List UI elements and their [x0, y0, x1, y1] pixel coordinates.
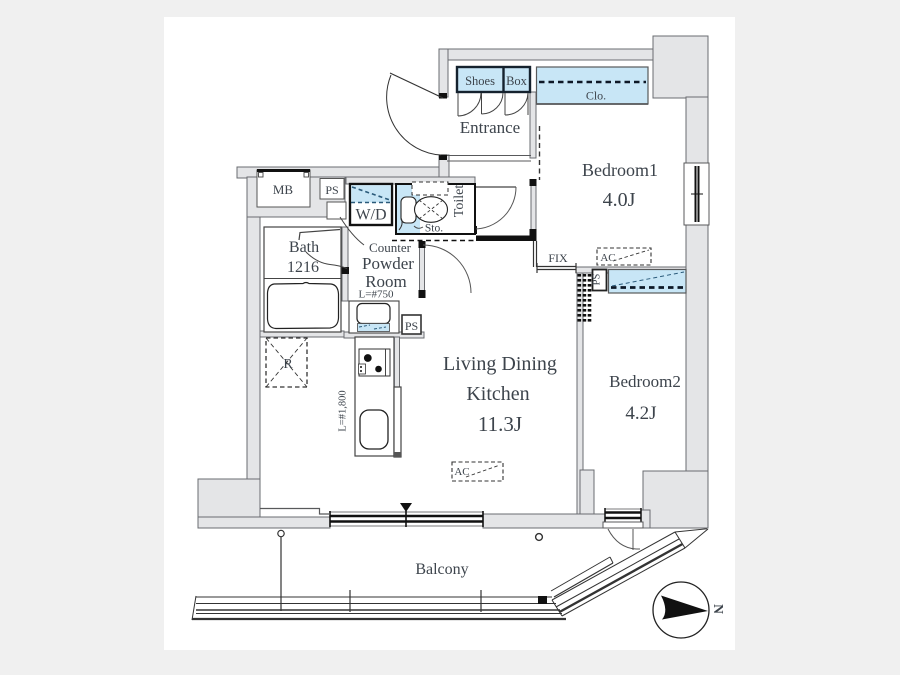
- svg-text:R: R: [283, 357, 293, 372]
- svg-text:Shoes: Shoes: [465, 74, 495, 88]
- svg-text:N: N: [711, 604, 726, 614]
- svg-text:AC: AC: [600, 252, 615, 264]
- svg-text:L=#750: L=#750: [359, 289, 394, 301]
- svg-text:PS: PS: [325, 183, 338, 197]
- svg-text:Toilet: Toilet: [452, 185, 467, 218]
- svg-text:L=#1,800: L=#1,800: [338, 390, 349, 431]
- svg-text:Bath: Bath: [289, 239, 319, 256]
- svg-text:11.3J: 11.3J: [478, 412, 522, 436]
- svg-text:4.0J: 4.0J: [603, 189, 636, 211]
- svg-text:W/D: W/D: [355, 207, 386, 224]
- svg-text:MB: MB: [273, 182, 294, 197]
- svg-text:AC: AC: [454, 466, 469, 478]
- svg-text:Bedroom1: Bedroom1: [582, 160, 658, 180]
- svg-text:Bedroom2: Bedroom2: [609, 372, 681, 391]
- svg-text:4.2J: 4.2J: [625, 403, 656, 424]
- svg-text:Entrance: Entrance: [460, 118, 520, 137]
- svg-text:PS: PS: [592, 274, 603, 286]
- svg-text:PS: PS: [405, 319, 418, 333]
- svg-text:Balcony: Balcony: [415, 561, 468, 578]
- svg-text:Living Dining: Living Dining: [443, 353, 557, 375]
- svg-text:1216: 1216: [287, 259, 319, 276]
- svg-text:Clo.: Clo.: [586, 89, 606, 103]
- svg-text:Powder: Powder: [362, 254, 414, 273]
- svg-text:Sto.: Sto.: [425, 223, 443, 235]
- svg-text:Counter: Counter: [369, 240, 412, 255]
- svg-text:Kitchen: Kitchen: [466, 383, 529, 405]
- svg-text:Box: Box: [506, 74, 528, 88]
- svg-text:FIX: FIX: [548, 251, 568, 265]
